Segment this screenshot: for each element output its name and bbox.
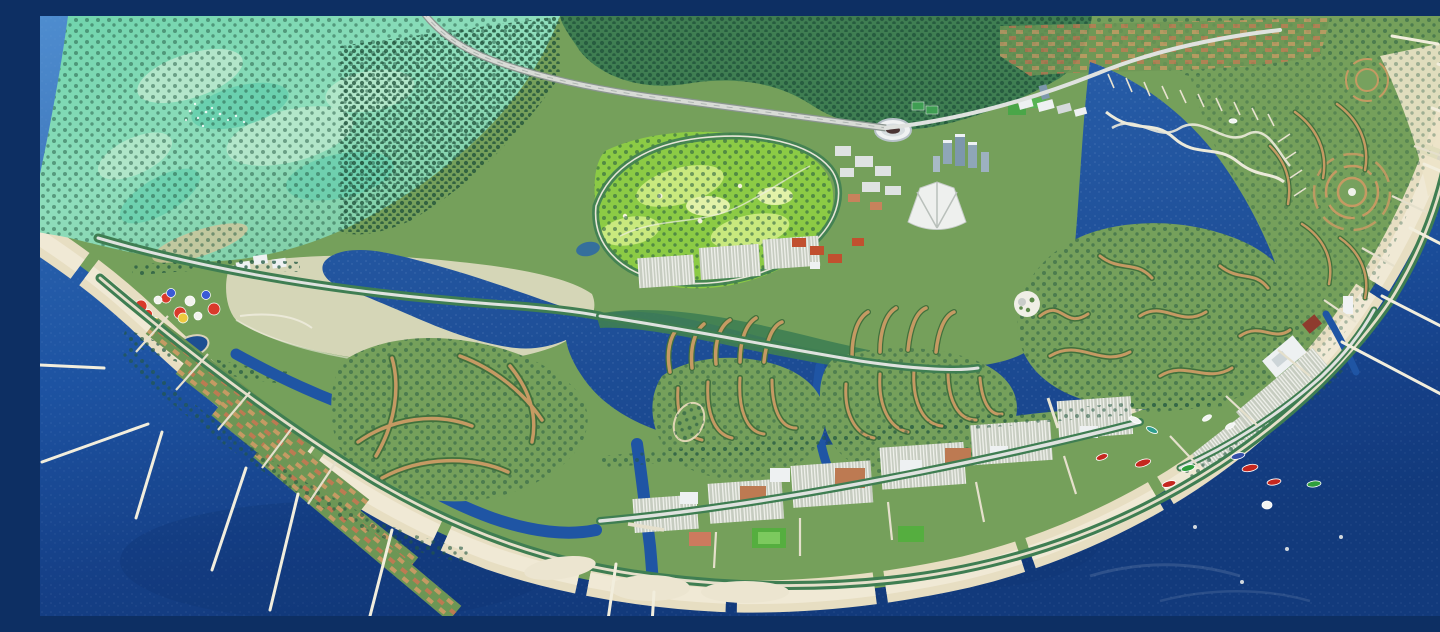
- scene-canvas: [40, 16, 1440, 616]
- boat: [1229, 119, 1237, 123]
- buoy: [1240, 580, 1244, 584]
- tent: [154, 296, 162, 304]
- sports-court: [689, 532, 711, 546]
- tent: [208, 303, 220, 315]
- aerial-render: Aerial 3D master-plan rendering of a cre…: [40, 16, 1440, 616]
- boat: [1262, 501, 1272, 509]
- tent: [178, 313, 188, 323]
- buoy: [1193, 525, 1197, 529]
- tent: [202, 291, 211, 300]
- tent: [167, 289, 176, 298]
- tent: [185, 296, 195, 306]
- beach-hotel: [1343, 296, 1353, 314]
- sports-field-inner: [758, 532, 780, 544]
- island-cluster-east: [1017, 223, 1302, 409]
- white-sand-islet: [1014, 291, 1040, 317]
- sports-field: [898, 526, 924, 542]
- tent: [194, 312, 202, 320]
- buoy: [1339, 535, 1343, 539]
- buoy: [1285, 547, 1289, 551]
